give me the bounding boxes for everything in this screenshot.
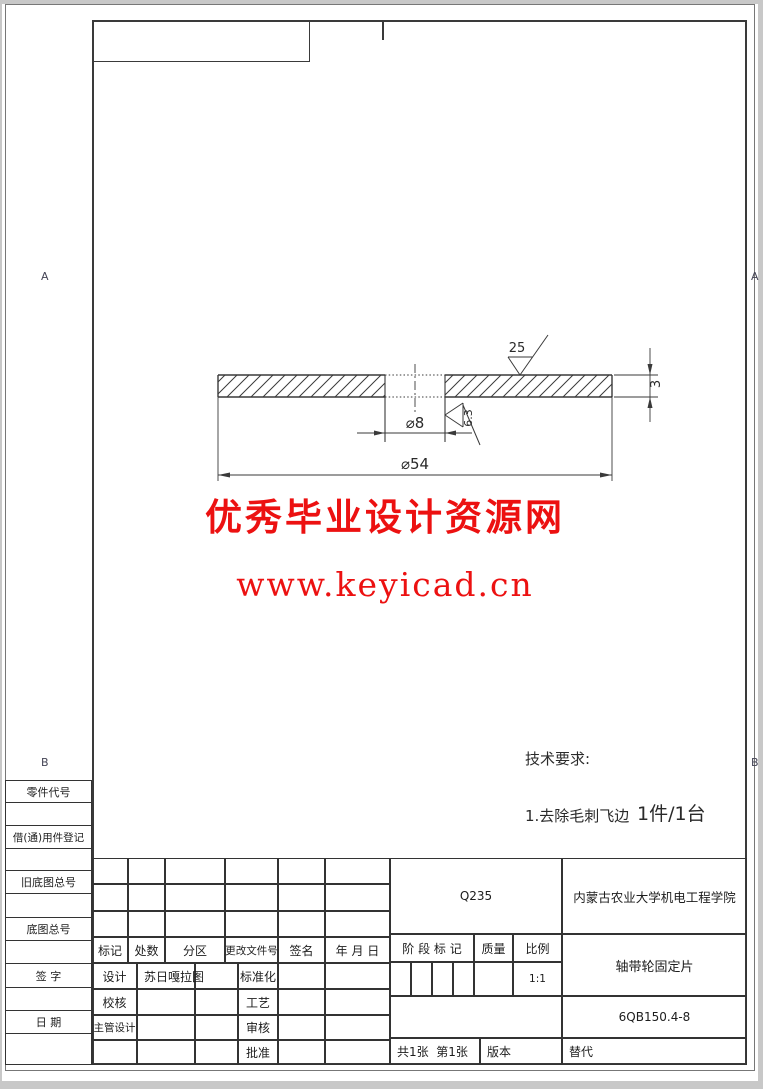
revision-cell [92,911,128,937]
margin-empty-cell [5,940,92,964]
margin-empty-cell [5,987,92,1011]
organization-cell: 内蒙古农业大学机电工程学院 [562,858,747,934]
watermark-title: 优秀毕业设计资源网 [195,487,575,541]
revision-cell [128,884,165,911]
margin-field-part-code: 零件代号 [5,780,92,803]
empty-cell [137,989,195,1015]
part-name-cell: 轴带轮固定片 [562,934,747,996]
technical-requirements: 技术要求: 1.去除毛刺飞边 [525,712,629,845]
revision-cell [278,884,325,911]
header-stage-mark: 阶 段 标 记 [390,934,474,962]
dim-outer-label: ⌀54 [401,455,429,473]
header-scale: 比例 [513,934,562,962]
empty-cell [278,963,325,989]
header-zone: 分区 [165,937,225,963]
margin-field-old-base-no: 旧底图总号 [5,870,92,894]
dim-hole-label: ⌀8 [406,414,425,432]
hatch-right [445,375,612,397]
revision-cell [92,858,128,884]
role-check: 校核 [92,989,137,1015]
header-weight: 质量 [474,934,513,962]
zone-letter-b-right: B [751,756,759,769]
revision-cell [225,884,278,911]
centering-mark [382,20,384,40]
dimension-lines [218,348,650,475]
empty-cell [137,1015,195,1040]
quantity-note: 1件/1台 [637,799,706,826]
hatch-left [218,375,385,397]
empty-cell [195,1015,238,1040]
margin-empty-cell [5,1033,92,1065]
revision-cell [128,911,165,937]
header-change-no: 更改文件号 [225,937,278,963]
watermark-url: www.keyicad.cn [195,565,575,604]
zone-letter-a-left: A [41,270,49,283]
margin-field-signature: 签 字 [5,963,92,988]
header-mark: 标记 [92,937,128,963]
screen-edge-bottom [0,1081,763,1089]
part-section-view: ⌀8 ⌀54 3 25 6.3 [180,320,700,510]
material-cell: Q235 [390,858,562,934]
weight-value-cell [474,962,513,996]
revision-cell [165,884,225,911]
replace-cell: 替代 [562,1038,747,1065]
zone-letter-b-left: B [41,756,49,769]
revision-cell [325,884,390,911]
role-chief-design: 主管设计 [92,1015,137,1040]
empty-cell [137,1040,195,1065]
empty-cell [278,1015,325,1040]
dim-thickness-label: 3 [649,380,664,388]
top-title-box [92,20,310,62]
stage-mark-cell [432,962,453,996]
screen-edge-left [0,0,2,1089]
stage-mark-cell [453,962,474,996]
stage-mark-cell [411,962,432,996]
designer-name: 苏日嘎拉图 [137,963,195,989]
margin-field-borrowed-parts: 借(通)用件登记 [5,825,92,849]
margin-empty-cell [5,848,92,871]
scale-value-cell: 1:1 [513,962,562,996]
empty-cell [195,989,238,1015]
margin-empty-cell [5,893,92,918]
empty-cell [92,1040,137,1065]
empty-cell [278,1040,325,1065]
role-process: 工艺 [238,989,278,1015]
drawing-number-cell: 6QB150.4-8 [562,996,747,1038]
cad-drawing-page: { "page": {"bg_color":"#c8c8c8","paper_c… [0,0,763,1089]
version-cell: 版本 [480,1038,562,1065]
revision-cell [225,858,278,884]
title-block: 标记 处数 分区 更改文件号 签名 年 月 日 设计 苏日嘎拉图 标准化 校核 … [92,858,747,1065]
role-standardize: 标准化 [238,963,278,989]
margin-field-date: 日 期 [5,1010,92,1034]
margin-field-base-no: 底图总号 [5,917,92,941]
header-date: 年 月 日 [325,937,390,963]
stage-mark-cell [390,962,411,996]
revision-cell [325,911,390,937]
role-design: 设计 [92,963,137,989]
revision-cell [325,858,390,884]
zone-letter-a-right: A [751,270,759,283]
roughness-top-value: 25 [509,341,526,356]
revision-cell [165,858,225,884]
revision-cell [128,858,165,884]
revision-cell [278,858,325,884]
empty-cell [390,996,562,1038]
tech-req-title: 技术要求: [525,750,629,769]
empty-cell [325,989,390,1015]
sheet-count-cell: 共1张 第1张 [390,1038,480,1065]
revision-cell [278,911,325,937]
revision-cell [92,884,128,911]
empty-cell [325,963,390,989]
header-signature: 签名 [278,937,325,963]
empty-cell [195,1040,238,1065]
role-approve: 批准 [238,1040,278,1065]
revision-cell [165,911,225,937]
roughness-hole-value: 6.3 [462,409,475,427]
screen-edge-right [758,0,763,1089]
margin-empty-cell [5,802,92,826]
header-count: 处数 [128,937,165,963]
revision-cell [225,911,278,937]
empty-cell [325,1040,390,1065]
role-review: 审核 [238,1015,278,1040]
tech-req-item: 1.去除毛刺飞边 [525,807,629,826]
empty-cell [278,989,325,1015]
empty-cell [325,1015,390,1040]
